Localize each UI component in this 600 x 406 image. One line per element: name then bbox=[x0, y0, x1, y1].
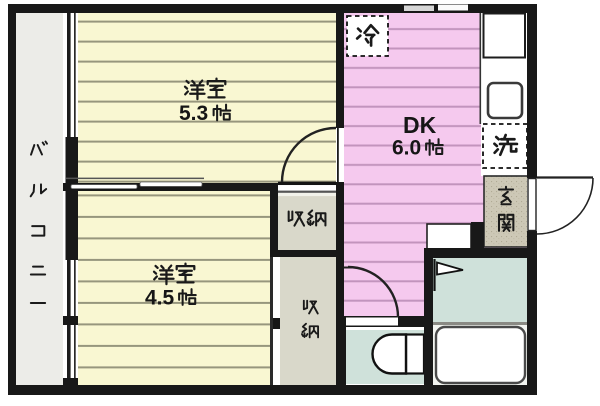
svg-text:4.5: 4.5 bbox=[145, 287, 175, 310]
svg-text:5.3: 5.3 bbox=[179, 102, 208, 125]
svg-text:6.0: 6.0 bbox=[392, 137, 421, 160]
svg-text:DK: DK bbox=[403, 112, 437, 138]
